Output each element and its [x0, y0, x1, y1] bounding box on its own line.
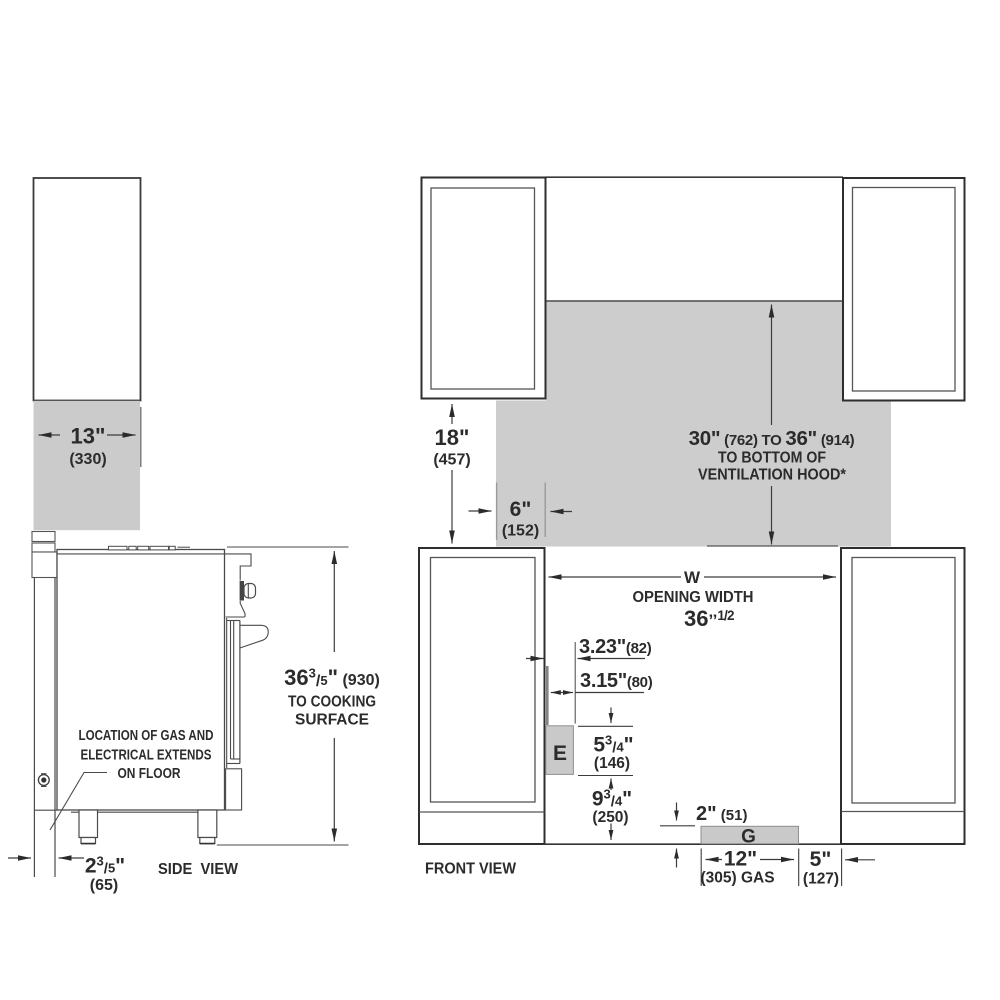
svg-text:(127): (127)	[803, 871, 839, 888]
svg-text:(146): (146)	[594, 755, 630, 772]
svg-text:G: G	[741, 827, 756, 848]
svg-text:12": 12"	[724, 848, 757, 871]
svg-text:(457): (457)	[433, 452, 470, 469]
svg-text:13": 13"	[71, 424, 106, 449]
svg-text:(65): (65)	[90, 877, 118, 894]
svg-text:ELECTRICAL EXTENDS: ELECTRICAL EXTENDS	[81, 748, 212, 764]
svg-text:E: E	[553, 742, 567, 765]
svg-text:5": 5"	[810, 848, 832, 871]
svg-text:(152): (152)	[502, 523, 539, 540]
svg-text:TO COOKING: TO COOKING	[288, 694, 376, 711]
svg-text:3.15"(80): 3.15"(80)	[580, 670, 653, 692]
svg-text:53/4": 53/4"	[593, 733, 633, 757]
svg-text:OPENING WIDTH: OPENING WIDTH	[633, 589, 754, 606]
svg-text:VENTILATION HOOD*: VENTILATION HOOD*	[698, 467, 847, 484]
svg-text:ON FLOOR: ON FLOOR	[118, 766, 181, 782]
svg-text:6": 6"	[510, 498, 532, 521]
svg-text:(330): (330)	[69, 451, 106, 468]
svg-text:93/4": 93/4"	[592, 787, 632, 811]
svg-text:2" (51): 2" (51)	[696, 803, 747, 825]
svg-text:LOCATION OF GAS AND: LOCATION OF GAS AND	[79, 728, 214, 744]
svg-text:SIDE VIEW: SIDE VIEW	[158, 861, 239, 878]
svg-text:SURFACE: SURFACE	[295, 712, 369, 729]
svg-text:(305) GAS: (305) GAS	[700, 870, 774, 887]
svg-text:23/5": 23/5"	[85, 854, 125, 878]
svg-text:363/5" (930): 363/5" (930)	[284, 665, 380, 690]
svg-text:36’’1/2: 36’’1/2	[684, 606, 734, 631]
svg-text:W: W	[684, 568, 701, 587]
svg-text:18": 18"	[435, 425, 470, 450]
svg-text:FRONT VIEW: FRONT VIEW	[425, 861, 517, 878]
svg-text:3.23"(82): 3.23"(82)	[579, 636, 652, 658]
svg-text:TO BOTTOM OF: TO BOTTOM OF	[718, 450, 826, 467]
svg-text:(250): (250)	[592, 809, 628, 826]
